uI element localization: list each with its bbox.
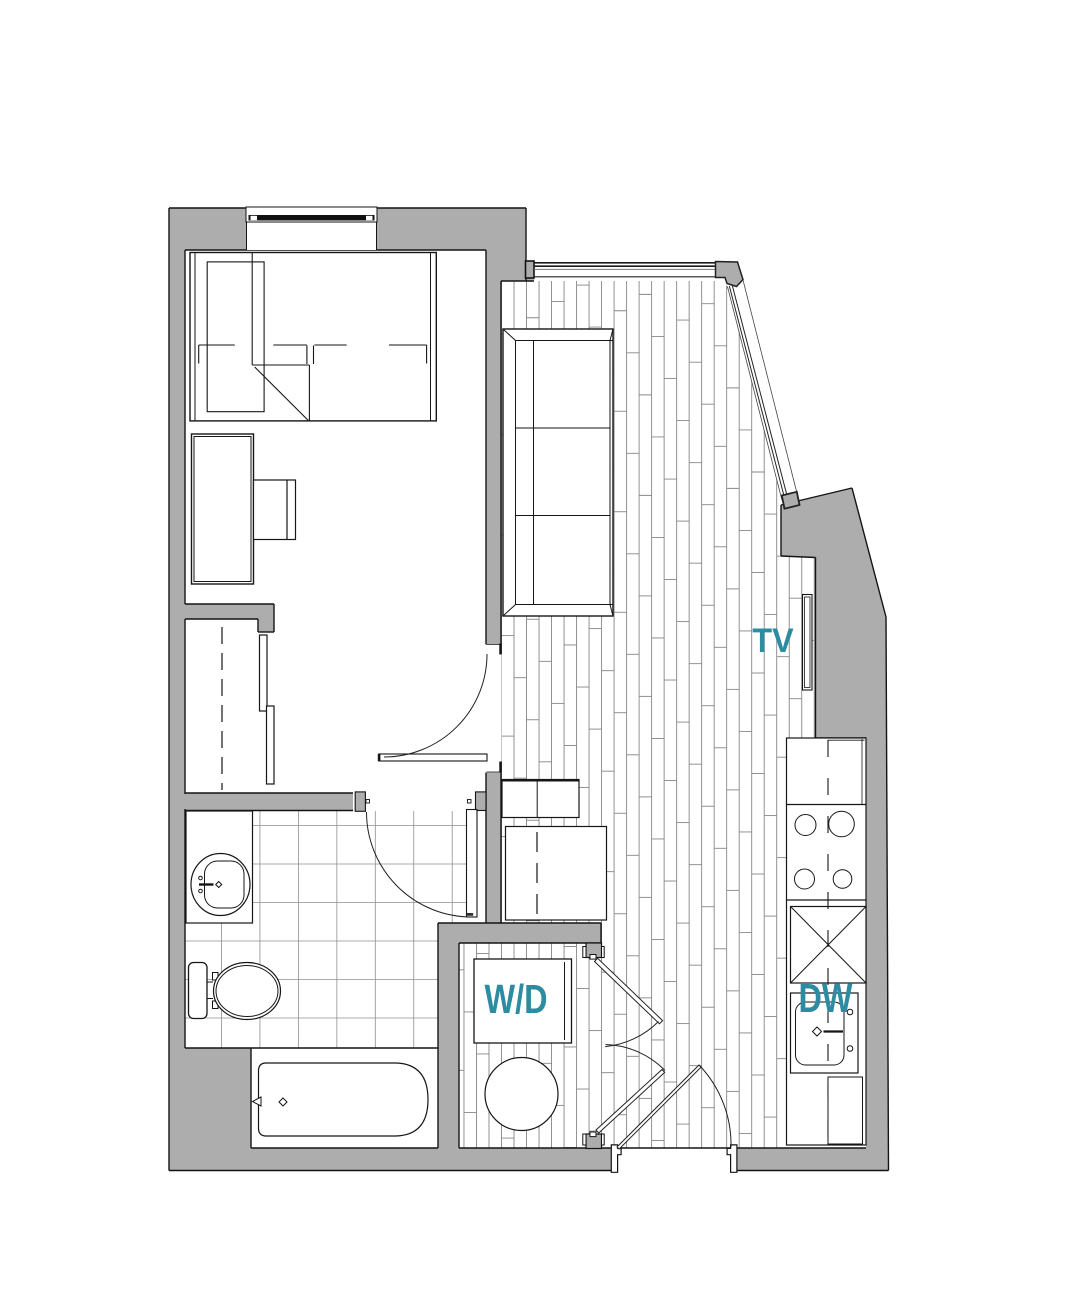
svg-text:TV: TV	[752, 622, 793, 660]
svg-text:DW: DW	[799, 976, 853, 1021]
svg-text:W/D: W/D	[485, 977, 548, 1022]
